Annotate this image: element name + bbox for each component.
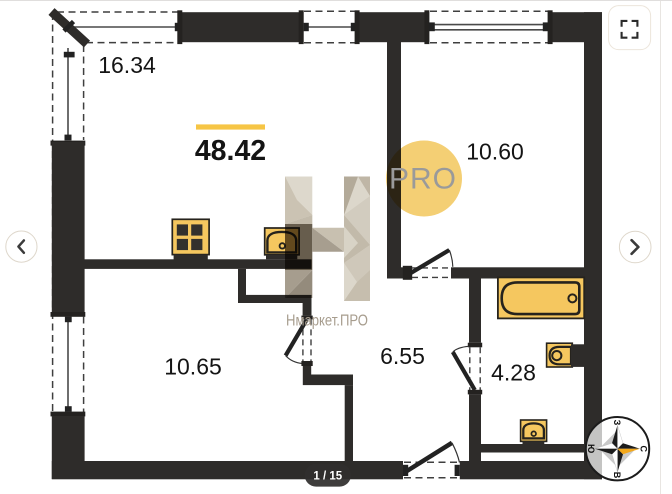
svg-text:З: З xyxy=(612,420,622,426)
svg-text:4.28: 4.28 xyxy=(491,360,536,386)
svg-text:PRO: PRO xyxy=(389,163,457,196)
svg-text:48.42: 48.42 xyxy=(195,135,266,167)
svg-text:В: В xyxy=(612,472,622,479)
svg-text:1 / 15: 1 / 15 xyxy=(313,471,342,483)
svg-text:10.60: 10.60 xyxy=(466,139,524,165)
svg-text:С: С xyxy=(639,445,649,452)
svg-text:16.34: 16.34 xyxy=(98,52,156,78)
svg-text:10.65: 10.65 xyxy=(164,354,222,380)
svg-text:6.55: 6.55 xyxy=(380,343,425,369)
svg-text:Нмаркет.ПРО: Нмаркет.ПРО xyxy=(286,313,368,330)
svg-text:Ю: Ю xyxy=(586,444,596,453)
